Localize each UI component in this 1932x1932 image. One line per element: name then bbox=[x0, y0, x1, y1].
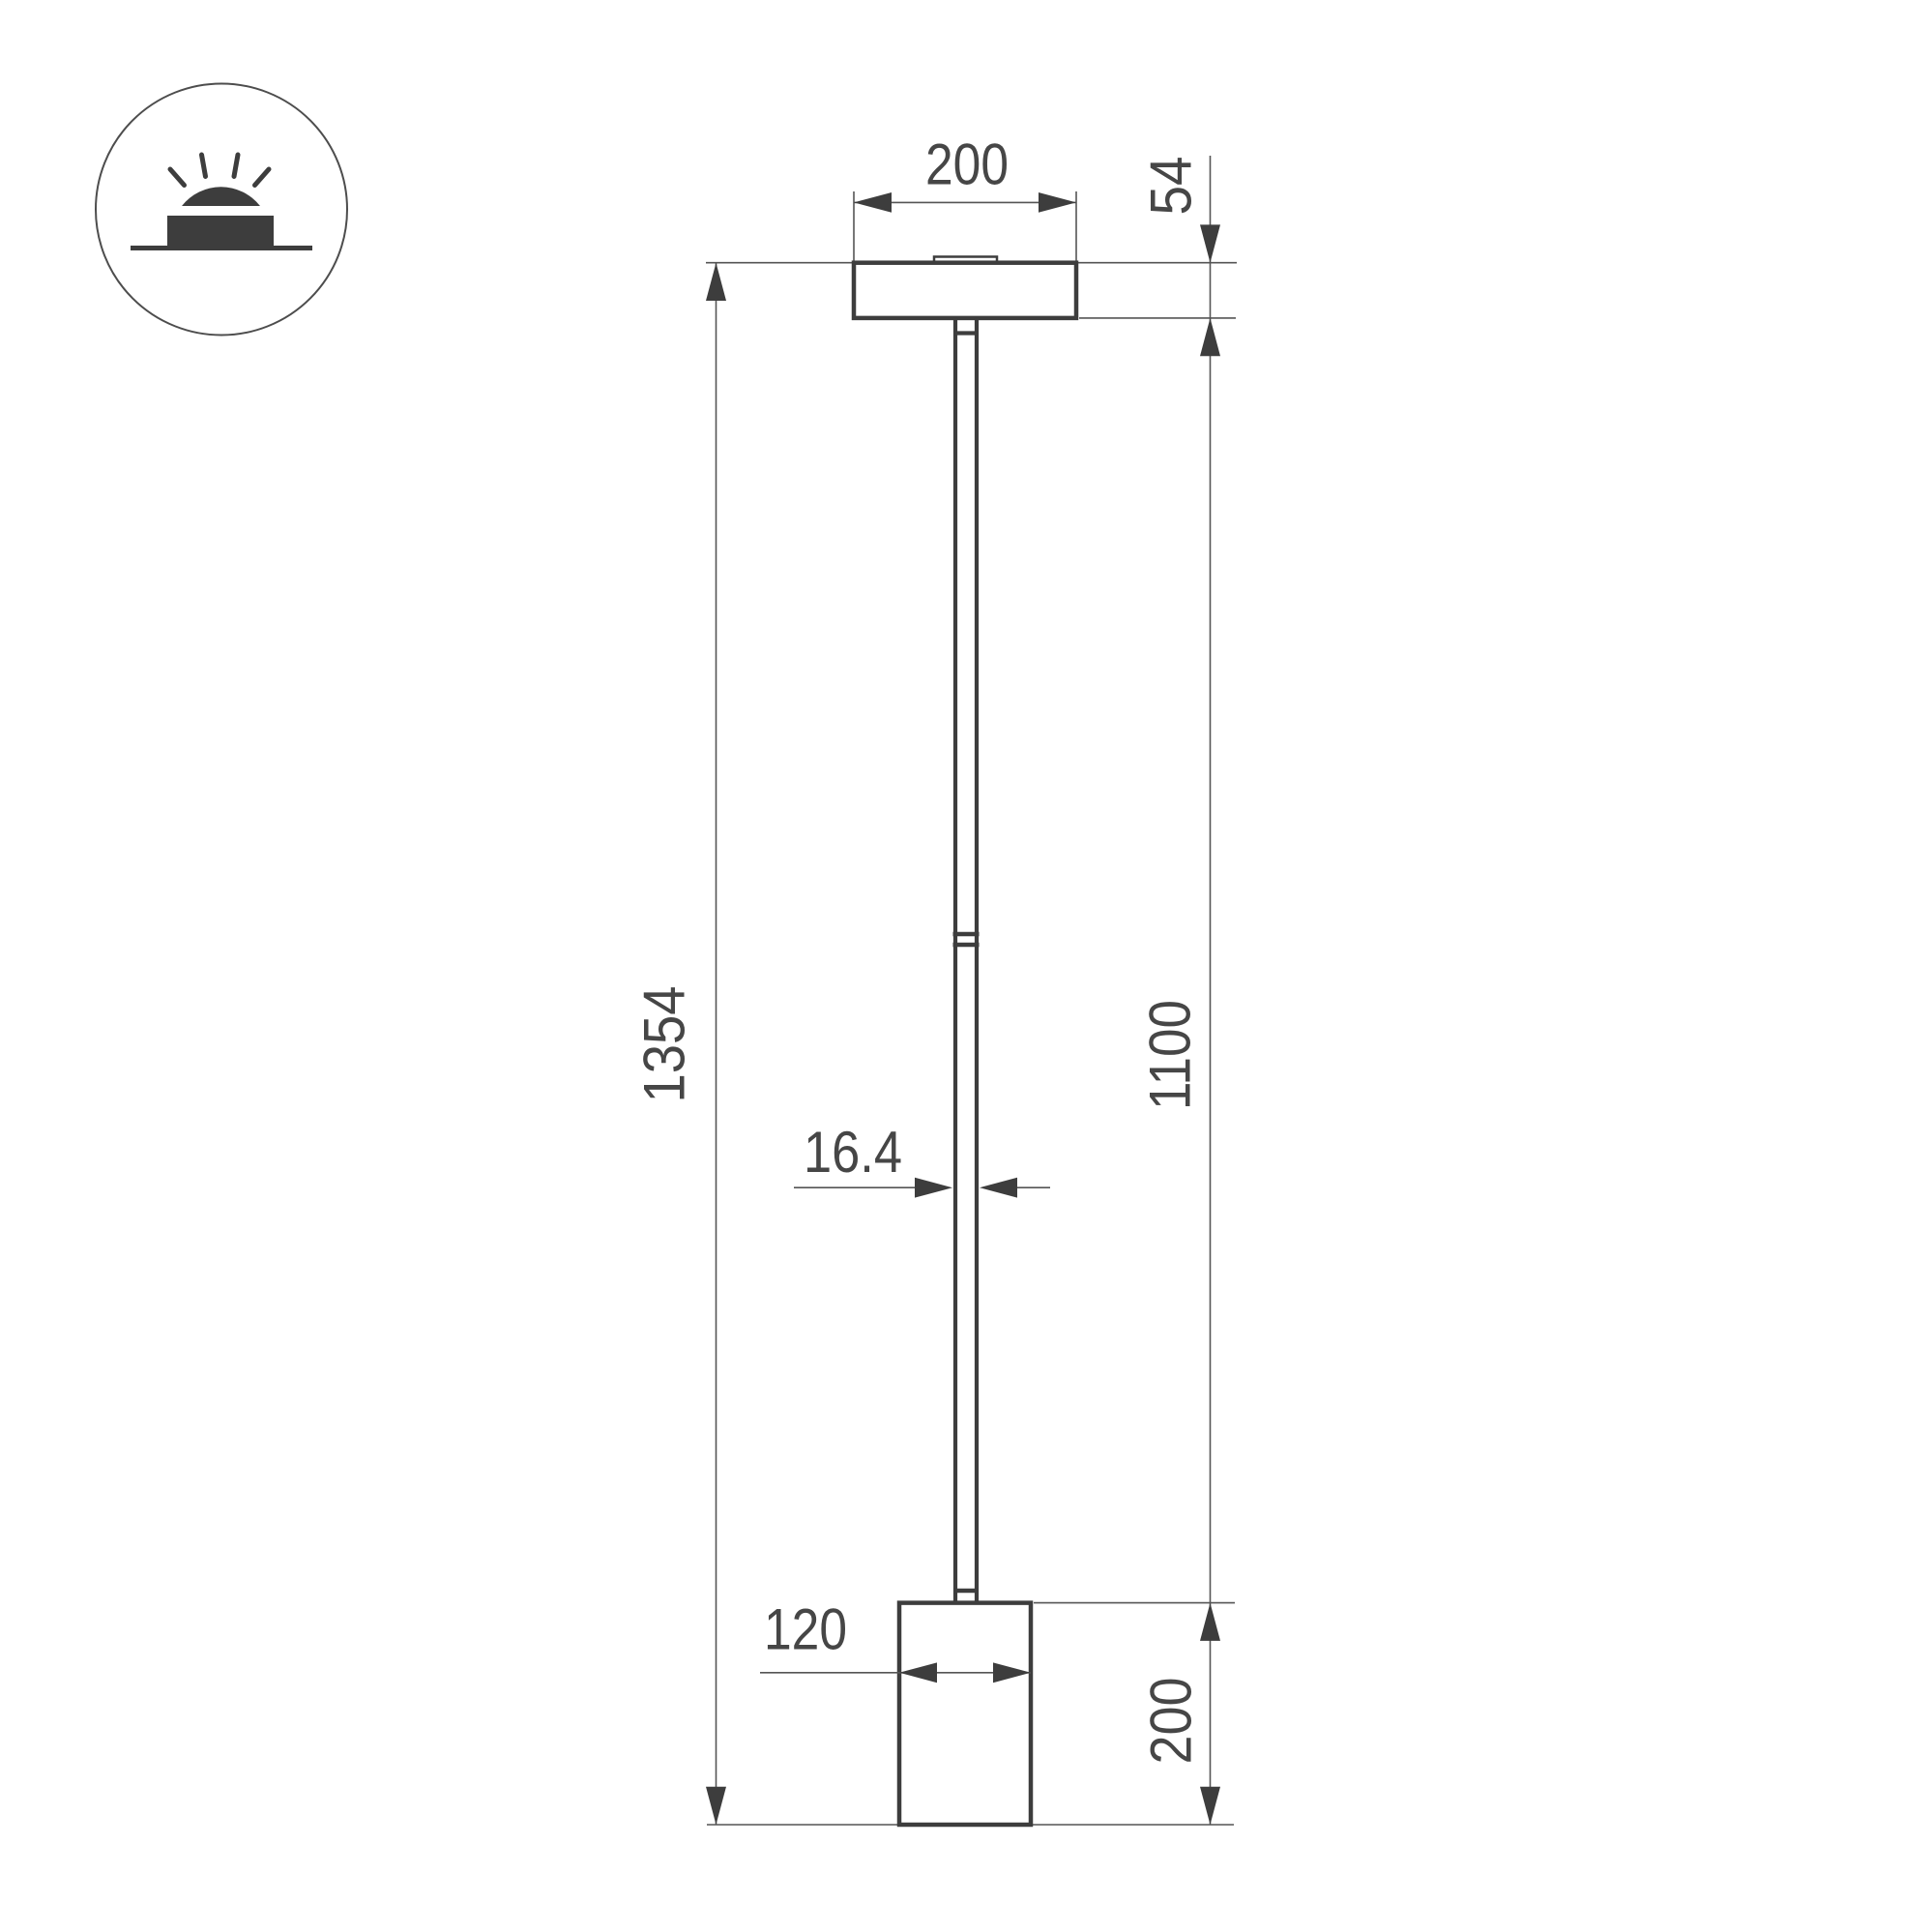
svg-text:200: 200 bbox=[925, 132, 1009, 197]
svg-text:1100: 1100 bbox=[1138, 1000, 1203, 1110]
svg-text:120: 120 bbox=[764, 1597, 847, 1662]
svg-text:16.4: 16.4 bbox=[804, 1120, 902, 1185]
svg-text:200: 200 bbox=[1139, 1678, 1204, 1765]
svg-text:54: 54 bbox=[1139, 157, 1204, 216]
svg-text:1354: 1354 bbox=[632, 986, 697, 1103]
